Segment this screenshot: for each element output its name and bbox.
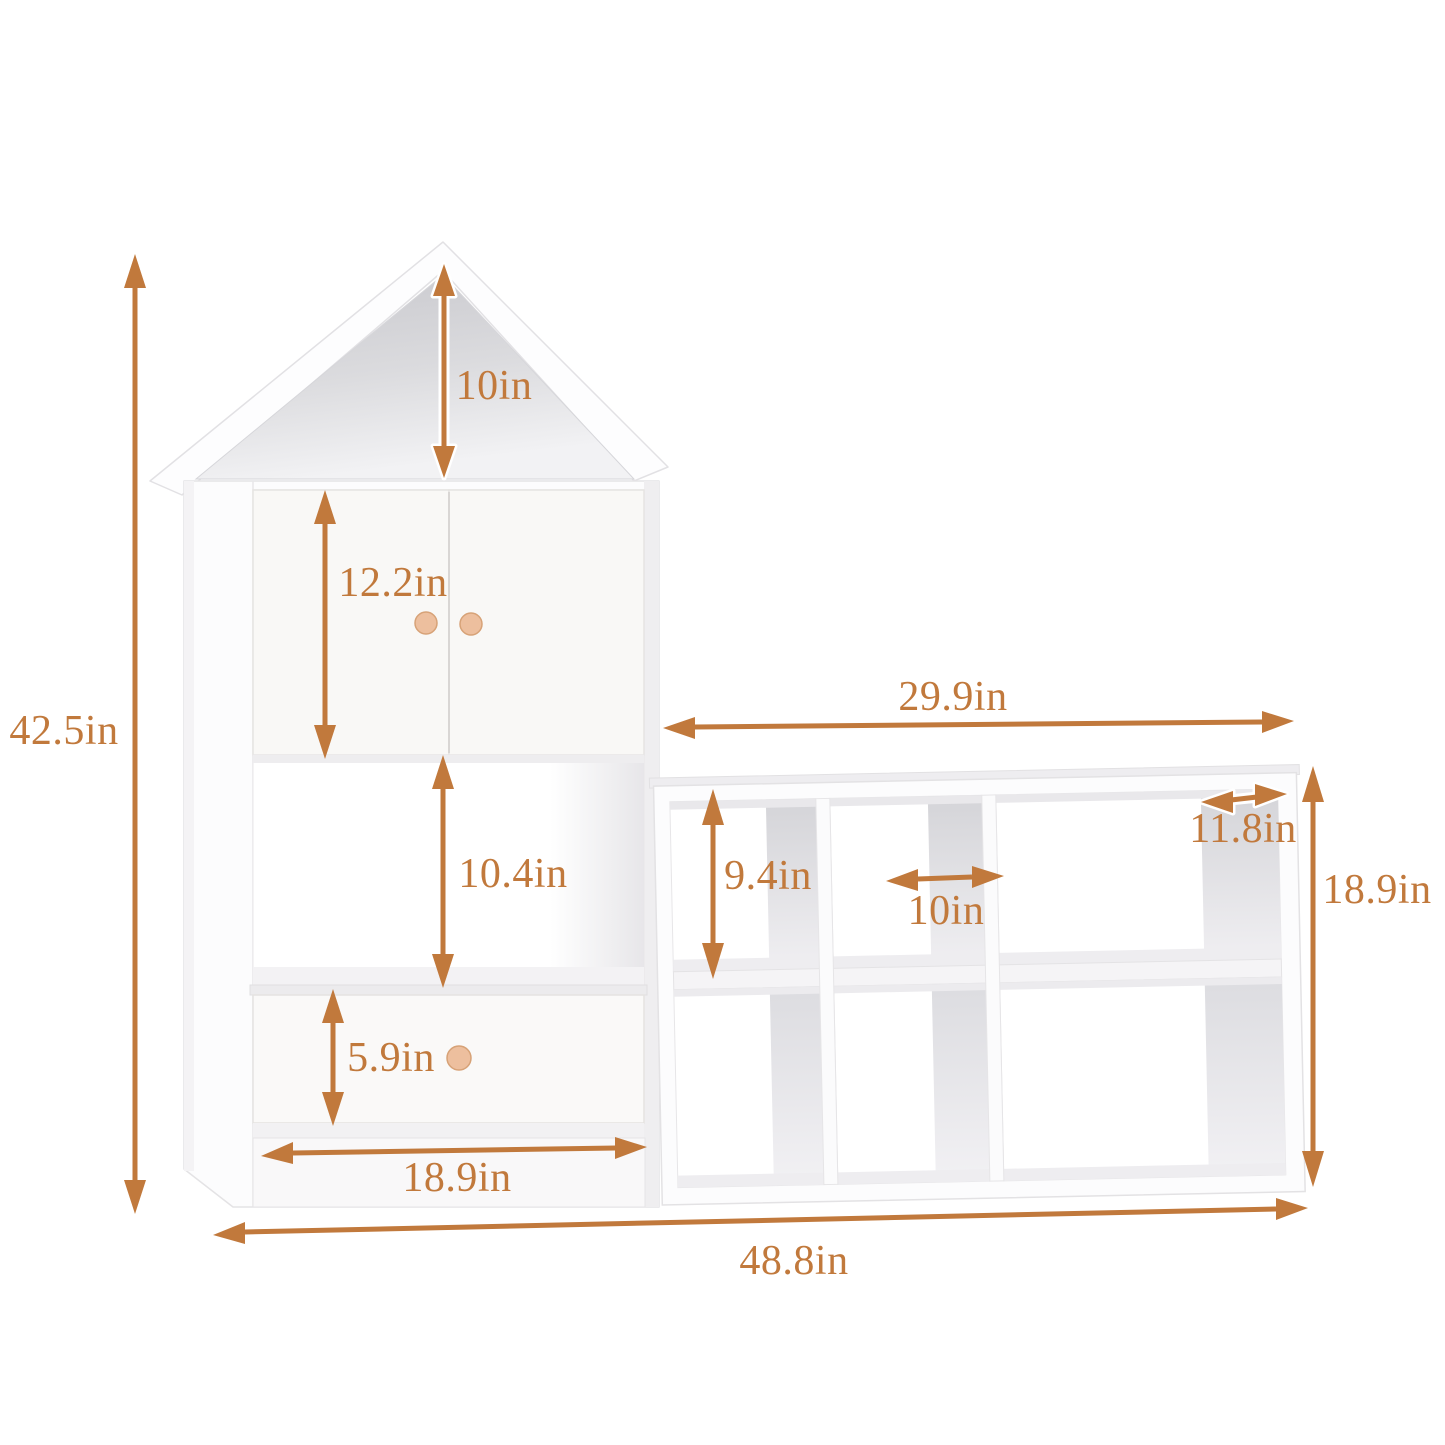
dim-label-open-shelf-height: 10.4in <box>458 853 567 895</box>
dim-label-total-height: 42.5in <box>9 710 118 752</box>
dim-label-cube-width: 29.9in <box>898 676 1007 718</box>
dim-label-door-height: 12.2in <box>338 562 447 604</box>
dim-label-cube-height: 18.9in <box>1322 869 1431 911</box>
under-drawer-gap <box>253 1123 644 1138</box>
product-dimensions-diagram: 42.5in 10in 12.2in 10.4in 5.9in 18.9in 4… <box>0 0 1445 1445</box>
dim-label-drawer-height: 5.9in <box>347 1037 435 1079</box>
cabinet-left-edge-shade <box>184 481 194 1171</box>
dim-label-cube-depth: 11.8in <box>1189 808 1297 850</box>
dim-label-cube-cell-width: 10in <box>908 890 985 932</box>
cube-cell-bottom-2 <box>834 983 990 1184</box>
cube-cell-bottom-1 <box>674 987 824 1188</box>
cube-cell-bottom-3 <box>1000 977 1286 1181</box>
dim-label-roof-height: 10in <box>456 365 533 407</box>
dim-label-house-width: 18.9in <box>402 1157 511 1199</box>
door-knob-right[interactable] <box>460 613 482 635</box>
door-knob-left[interactable] <box>415 612 437 634</box>
dim-arrow-total-height <box>124 254 146 1214</box>
drawer-knob[interactable] <box>447 1046 471 1070</box>
dim-label-total-width: 48.8in <box>739 1240 848 1282</box>
cavity-top-shadow <box>253 755 644 763</box>
dim-label-cube-cell-height: 9.4in <box>724 855 812 897</box>
furniture-illustration <box>0 0 1445 1445</box>
shelf-board <box>250 985 647 995</box>
dim-arrow-cube-height <box>1302 766 1324 1187</box>
